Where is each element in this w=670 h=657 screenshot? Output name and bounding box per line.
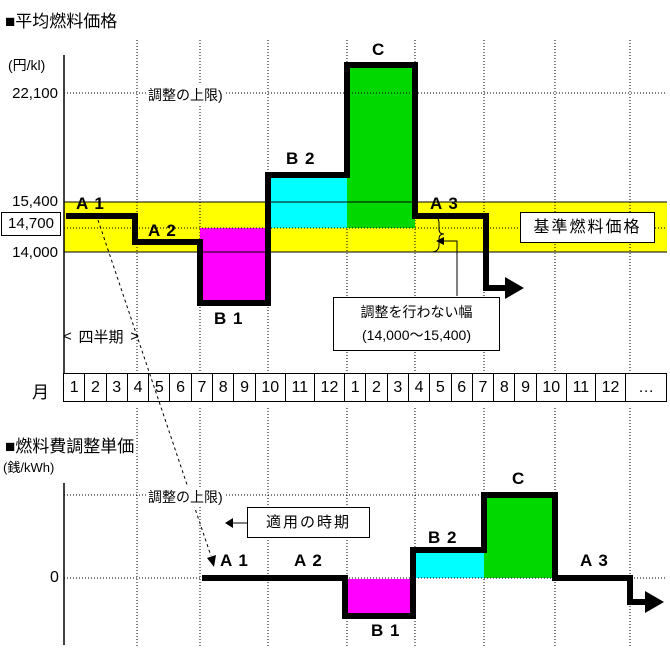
- bottom-chart-title: ■燃料費調整単価: [5, 432, 134, 457]
- top-upper-limit-label: 調整の上限): [146, 85, 225, 105]
- bottom-y-unit: (銭/kWh): [3, 457, 54, 476]
- month-cell: 12: [596, 374, 626, 401]
- unit-segment-label-c: C: [512, 469, 525, 489]
- month-cell: 1: [64, 374, 85, 401]
- top-y-unit: (円/kl): [8, 55, 45, 75]
- lag-connector-arrowhead: [207, 555, 216, 567]
- month-cell: 12: [315, 374, 345, 401]
- segment-label-a1: A 1: [76, 194, 105, 214]
- tick-14700-boxed: 14,700: [1, 212, 61, 236]
- applied-period-box: 適用の時期: [247, 507, 370, 538]
- month-cell: 11: [286, 374, 315, 401]
- bar-c-capped: [347, 65, 415, 228]
- no-adjustment-note-line1: 調整を行わない幅: [334, 301, 499, 324]
- top-continuation-arrowhead: [505, 277, 524, 299]
- bar-b1-negative: [200, 228, 268, 304]
- segment-label-c: C: [372, 40, 385, 60]
- segment-label-b1: B 1: [214, 309, 243, 329]
- bar-b2-unit-positive: [413, 550, 484, 578]
- quarter-right-arrow-icon: >: [130, 328, 139, 345]
- tick-22100: 22,100: [0, 85, 58, 102]
- segment-label-a3: A 3: [430, 194, 459, 214]
- month-axis-label: 月: [32, 378, 49, 403]
- tick-14000: 14,000: [0, 244, 58, 261]
- bar-b1-unit-negative: [345, 579, 413, 617]
- month-cell: 9: [234, 374, 255, 401]
- month-cell: 10: [537, 374, 567, 401]
- reference-price-box: 基準燃料価格: [520, 212, 655, 243]
- quarter-span-indicator: < 四半期 >: [63, 326, 139, 347]
- month-cell: 5: [149, 374, 170, 401]
- applied-period-arrowhead: [225, 518, 233, 528]
- tick-15400: 15,400: [0, 193, 58, 210]
- month-cell: 11: [567, 374, 596, 401]
- month-cell: 2: [85, 374, 106, 401]
- segment-label-b2: B 2: [286, 149, 315, 169]
- bar-c-unit-capped: [484, 495, 555, 578]
- month-cell: 8: [213, 374, 234, 401]
- month-cell: 3: [107, 374, 128, 401]
- month-cell: 4: [409, 374, 430, 401]
- month-cell: 3: [388, 374, 409, 401]
- month-cell: 7: [473, 374, 494, 401]
- month-cell: 7: [192, 374, 213, 401]
- fuel-cost-adjustment-diagram: ■平均燃料価格 (円/kl) 22,100 15,400 14,700 14,0…: [0, 0, 670, 657]
- unit-segment-label-b2: B 2: [428, 528, 457, 548]
- month-cell: 5: [430, 374, 451, 401]
- unit-segment-label-a3: A 3: [580, 551, 609, 571]
- month-ellipsis-cell: …: [626, 374, 666, 401]
- bottom-upper-limit-label: 調整の上限): [146, 487, 225, 507]
- month-cell: 9: [515, 374, 536, 401]
- month-cell: 1: [345, 374, 366, 401]
- month-cell: 2: [366, 374, 387, 401]
- month-cell: 6: [170, 374, 191, 401]
- month-cell: 8: [494, 374, 515, 401]
- month-cell: 6: [452, 374, 473, 401]
- tick-zero: 0: [50, 569, 59, 587]
- no-adjustment-note-line2: (14,000～15,400): [334, 324, 499, 347]
- bottom-continuation-arrowhead: [645, 591, 664, 613]
- quarter-left-arrow-icon: <: [63, 328, 72, 345]
- quarter-label: 四半期: [78, 326, 123, 347]
- unit-segment-label-b1: B 1: [371, 621, 400, 641]
- no-adjustment-note-box: 調整を行わない幅 (14,000～15,400): [333, 297, 500, 351]
- top-chart-title: ■平均燃料価格: [5, 7, 117, 32]
- segment-label-a2: A 2: [148, 221, 177, 241]
- month-cell: 4: [128, 374, 149, 401]
- month-cell: 10: [256, 374, 286, 401]
- unit-segment-label-a1: A 1: [220, 551, 249, 571]
- unit-segment-label-a2: A 2: [294, 551, 323, 571]
- month-axis-row: 123456789101112123456789101112…: [63, 373, 667, 402]
